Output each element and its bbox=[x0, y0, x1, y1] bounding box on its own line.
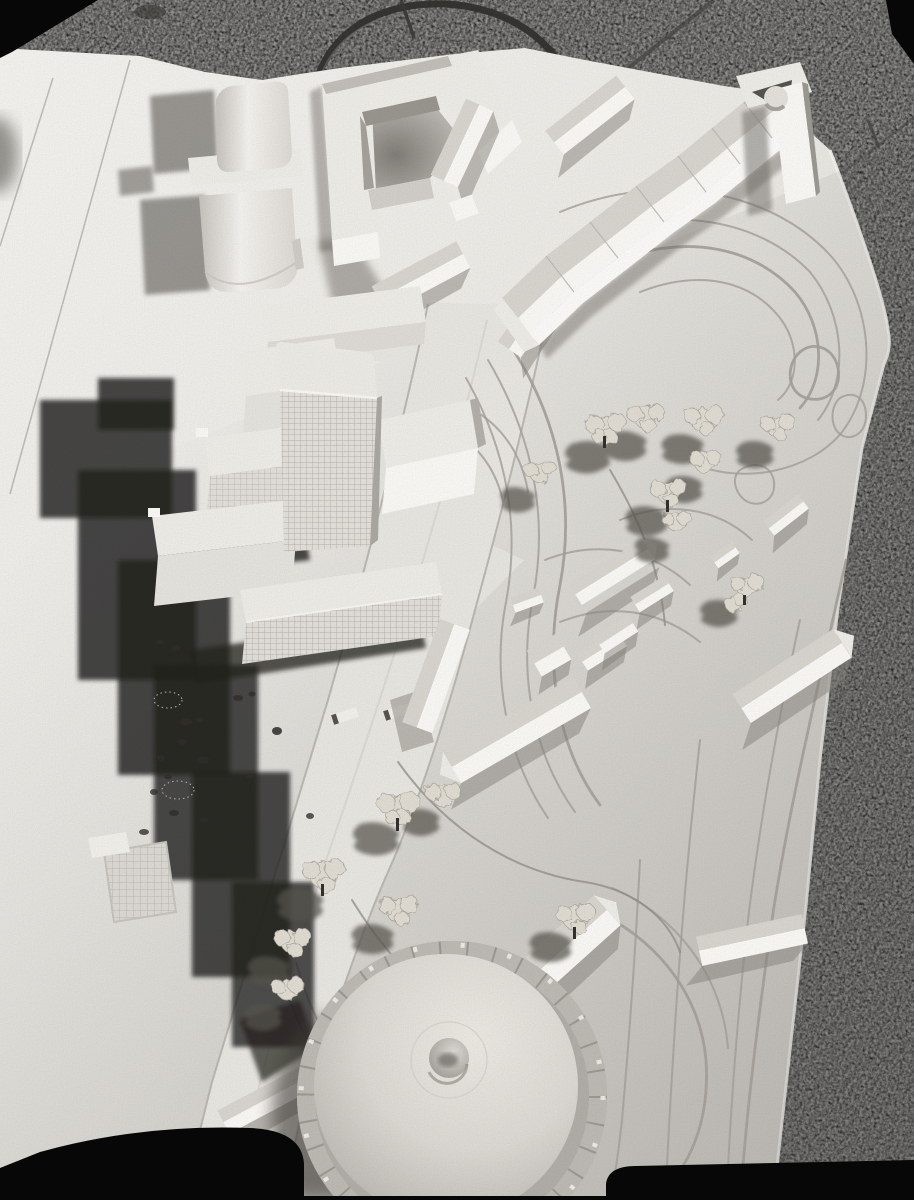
photograph-of-architectural-model bbox=[0, 0, 914, 1200]
film-grain bbox=[0, 0, 914, 1200]
